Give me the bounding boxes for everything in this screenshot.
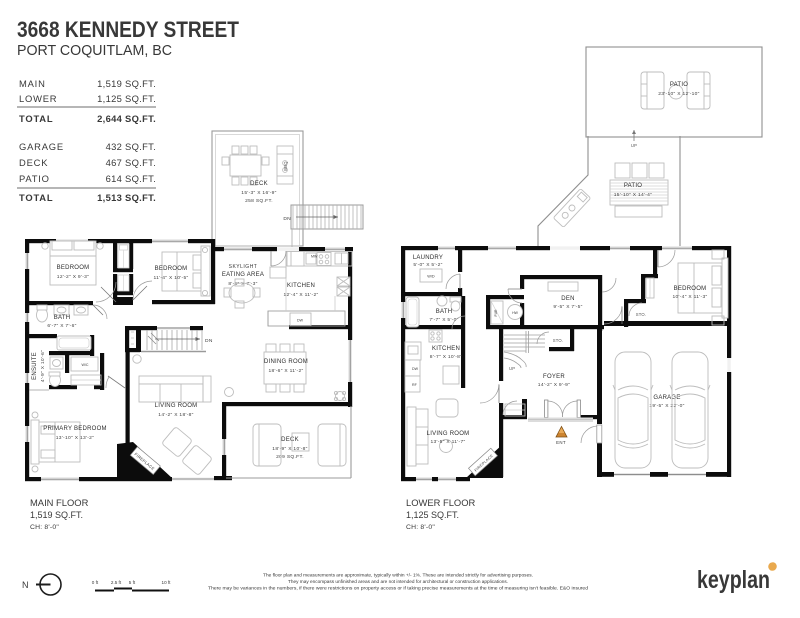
svg-text:10 ft: 10 ft — [162, 580, 172, 585]
svg-text:432 SQ.FT.: 432 SQ.FT. — [106, 141, 156, 152]
svg-text:RF: RF — [412, 383, 418, 387]
svg-text:UP: UP — [509, 366, 515, 371]
svg-text:GARAGE: GARAGE — [653, 395, 680, 401]
svg-text:CH: 8'-0": CH: 8'-0" — [406, 524, 435, 531]
svg-text:LAUNDRY: LAUNDRY — [413, 255, 443, 261]
svg-text:DW: DW — [297, 319, 304, 323]
svg-text:FUR: FUR — [494, 309, 498, 317]
svg-text:BBQ: BBQ — [283, 161, 288, 171]
svg-text:DECK: DECK — [19, 157, 48, 168]
svg-text:There may be variances in the: There may be variances in the numbers, i… — [208, 586, 588, 592]
svg-text:KITCHEN: KITCHEN — [432, 346, 460, 352]
svg-text:BATH: BATH — [436, 309, 453, 315]
svg-text:MAIN: MAIN — [19, 78, 46, 89]
svg-text:10'-4" X 11'-3": 10'-4" X 11'-3" — [672, 294, 707, 300]
svg-text:5'-0" X 5'-2": 5'-0" X 5'-2" — [413, 262, 442, 268]
svg-text:ENSUITE: ENSUITE — [32, 352, 38, 380]
svg-text:23'-10" X 12'-10": 23'-10" X 12'-10" — [658, 91, 699, 97]
svg-text:STO.: STO. — [636, 312, 647, 317]
svg-text:614 SQ.FT.: 614 SQ.FT. — [106, 173, 156, 184]
svg-text:TOTAL: TOTAL — [19, 113, 53, 124]
svg-text:PORT COQUITLAM, BC: PORT COQUITLAM, BC — [17, 43, 172, 59]
svg-text:12'-4" X 11'-2": 12'-4" X 11'-2" — [283, 292, 318, 298]
svg-text:W/C: W/C — [82, 363, 89, 367]
svg-text:The floor plan and measurement: The floor plan and measurements are appr… — [263, 573, 533, 579]
svg-text:2.5 ft: 2.5 ft — [111, 580, 122, 585]
svg-text:BEDROOM: BEDROOM — [57, 265, 90, 271]
svg-text:ENT: ENT — [556, 440, 566, 445]
svg-text:FOYER: FOYER — [543, 374, 565, 380]
svg-text:W/D: W/D — [427, 275, 435, 279]
svg-text:STO.: STO. — [553, 338, 564, 343]
svg-text:14'-2" X 18'-8": 14'-2" X 18'-8" — [158, 412, 193, 418]
svg-text:GARAGE: GARAGE — [19, 141, 64, 152]
svg-text:15'-10" X 14'-4": 15'-10" X 14'-4" — [614, 192, 652, 198]
svg-text:PATIO: PATIO — [670, 82, 688, 88]
svg-text:LIVING ROOM: LIVING ROOM — [155, 403, 198, 409]
svg-text:467 SQ.FT.: 467 SQ.FT. — [106, 157, 156, 168]
svg-text:PATIO: PATIO — [624, 183, 642, 189]
svg-text:BEDROOM: BEDROOM — [674, 286, 707, 292]
svg-text:DECK: DECK — [281, 437, 299, 443]
svg-text:13'-5" X 11'-7": 13'-5" X 11'-7" — [430, 439, 465, 445]
svg-text:1,125 SQ.FT.: 1,125 SQ.FT. — [406, 510, 459, 520]
svg-text:1,519 SQ.FT.: 1,519 SQ.FT. — [30, 510, 83, 520]
svg-text:1,519 SQ.FT.: 1,519 SQ.FT. — [97, 78, 156, 89]
svg-text:1,513 SQ.FT.: 1,513 SQ.FT. — [97, 192, 156, 203]
svg-text:DEN: DEN — [561, 296, 574, 302]
svg-text:258 SQ.FT.: 258 SQ.FT. — [245, 198, 273, 204]
svg-text:19'-5" X 22'-0": 19'-5" X 22'-0" — [649, 403, 684, 409]
svg-text:LOWER FLOOR: LOWER FLOOR — [406, 497, 476, 508]
svg-text:6'-7" X 7'-6": 6'-7" X 7'-6" — [47, 323, 76, 329]
svg-text:DW: DW — [412, 367, 419, 371]
svg-text:HW: HW — [512, 311, 518, 315]
svg-text:PATIO: PATIO — [19, 173, 50, 184]
svg-text:5 ft: 5 ft — [129, 580, 136, 585]
svg-text:18'-6" X 11'-2": 18'-6" X 11'-2" — [268, 368, 303, 374]
svg-text:15'-3" X 16'-9": 15'-3" X 16'-9" — [241, 190, 276, 196]
svg-text:14'-2" X 9'-9": 14'-2" X 9'-9" — [538, 382, 570, 388]
svg-text:PRIMARY BEDROOM: PRIMARY BEDROOM — [43, 426, 107, 432]
svg-text:1,125 SQ.FT.: 1,125 SQ.FT. — [97, 93, 156, 104]
svg-text:2,644 SQ.FT.: 2,644 SQ.FT. — [97, 113, 156, 124]
svg-text:4'-9" X 10'-6": 4'-9" X 10'-6" — [40, 350, 46, 382]
svg-text:8'-7" X 10'-8": 8'-7" X 10'-8" — [430, 354, 462, 360]
svg-text:LIVING ROOM: LIVING ROOM — [427, 431, 470, 437]
svg-text:CH: 8'-0": CH: 8'-0" — [30, 524, 59, 531]
svg-text:209 SQ.FT.: 209 SQ.FT. — [276, 454, 304, 460]
svg-text:UP: UP — [631, 143, 637, 148]
svg-text:3668 KENNEDY STREET: 3668 KENNEDY STREET — [17, 17, 239, 42]
svg-text:DN: DN — [205, 338, 213, 344]
svg-text:9'-5" X 7'-5": 9'-5" X 7'-5" — [553, 304, 582, 310]
svg-text:They may encompass unfinished: They may encompass unfinished areas and … — [288, 579, 508, 585]
svg-text:KITCHEN: KITCHEN — [287, 283, 315, 289]
svg-text:keyplan: keyplan — [697, 566, 770, 594]
svg-text:BEDROOM: BEDROOM — [155, 266, 188, 272]
svg-text:LOWER: LOWER — [19, 93, 57, 104]
svg-text:0 ft: 0 ft — [92, 580, 99, 585]
svg-text:N: N — [22, 580, 29, 590]
svg-text:MAIN FLOOR: MAIN FLOOR — [30, 497, 89, 508]
svg-text:MW: MW — [311, 255, 318, 259]
svg-text:TOTAL: TOTAL — [19, 192, 53, 203]
svg-text:11'-4" X 10'-5": 11'-4" X 10'-5" — [153, 275, 188, 281]
svg-text:DECK: DECK — [250, 181, 268, 187]
svg-text:12'-2" X 9'-3": 12'-2" X 9'-3" — [57, 274, 89, 280]
svg-text:13'-10" X 13'-2": 13'-10" X 13'-2" — [56, 435, 94, 441]
svg-text:BATH: BATH — [54, 315, 71, 321]
svg-text:DN: DN — [283, 216, 291, 222]
svg-text:DINING ROOM: DINING ROOM — [264, 359, 308, 365]
svg-text:SKYLIGHT: SKYLIGHT — [229, 264, 258, 270]
svg-text:EATING AREA: EATING AREA — [222, 272, 264, 278]
